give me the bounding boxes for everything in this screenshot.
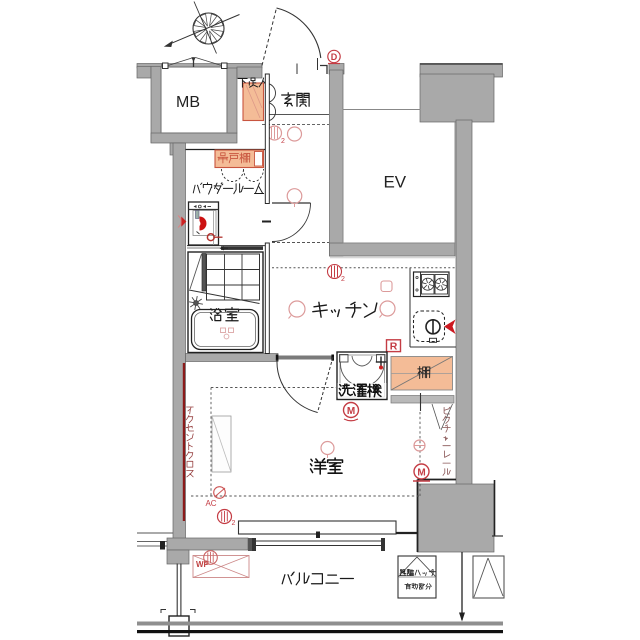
svg-text:2: 2: [341, 276, 345, 283]
svg-text:EV: EV: [383, 173, 406, 192]
svg-text:AC: AC: [205, 499, 216, 508]
svg-text:2: 2: [232, 520, 236, 527]
svg-text:D: D: [331, 52, 338, 62]
svg-text:2: 2: [281, 138, 285, 145]
svg-text:M: M: [417, 467, 425, 478]
svg-text:MB: MB: [176, 94, 200, 111]
svg-text:M: M: [347, 406, 355, 417]
svg-text:R: R: [390, 341, 398, 353]
